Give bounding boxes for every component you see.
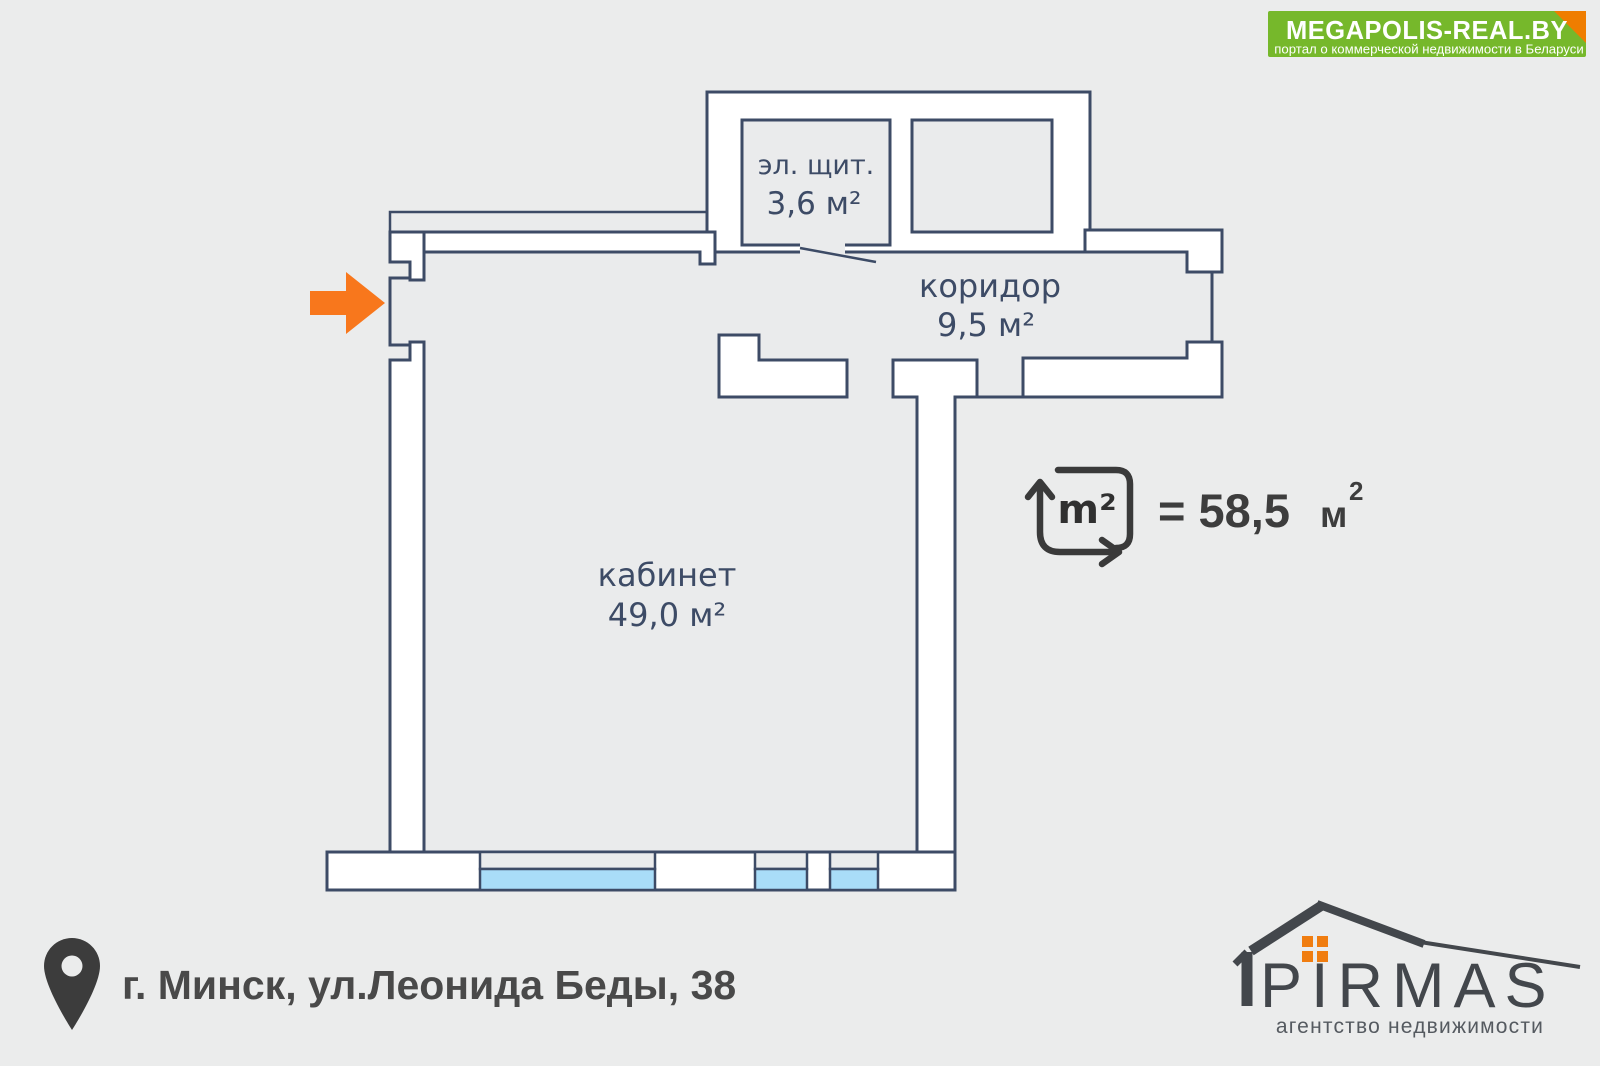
room-office-name: кабинет xyxy=(598,556,737,594)
portal-banner-subtitle: портал о коммерческой недвижимости в Бел… xyxy=(1274,42,1583,57)
square-meters-icon-label: m² xyxy=(1057,487,1116,533)
window-small-1-glass xyxy=(755,869,807,890)
flyer-canvas: эл. щит. 3,6 м² коридор 9,5 м² кабинет 4… xyxy=(0,0,1600,1066)
real-estate-flyer: эл. щит. 3,6 м² коридор 9,5 м² кабинет 4… xyxy=(0,0,1600,1066)
north-wall-poche xyxy=(390,212,715,232)
total-area-unit: м xyxy=(1320,494,1347,535)
address-text: г. Минск, ул.Леонида Беды, 38 xyxy=(122,962,736,1008)
room-el-shield-area: 3,6 м² xyxy=(767,186,862,222)
agency-name: PIRMAS xyxy=(1260,951,1556,1021)
portal-banner: MEGAPOLIS-REAL.BY портал о коммерческой … xyxy=(1268,11,1586,57)
room-corridor-area: 9,5 м² xyxy=(937,306,1035,344)
location-pin-hole xyxy=(62,956,83,977)
agency-tagline: агентство недвижимости xyxy=(1276,1015,1544,1038)
window-small-1-sill xyxy=(755,852,807,869)
total-area-unit-sup: 2 xyxy=(1349,476,1363,506)
window-long-sill xyxy=(480,852,655,869)
window-long-glass xyxy=(480,869,655,890)
west-wall-lower xyxy=(390,342,424,852)
room-corridor-name: коридор xyxy=(919,267,1061,305)
room-el-shield-floor xyxy=(742,120,890,245)
room-office-area: 49,0 м² xyxy=(608,596,726,634)
window-small-2-glass xyxy=(830,869,878,890)
room-shaft-floor xyxy=(912,120,1052,232)
total-area-value: = 58,5 xyxy=(1158,484,1290,537)
window-small-2-sill xyxy=(830,852,878,869)
room-el-shield-name: эл. щит. xyxy=(758,150,875,181)
